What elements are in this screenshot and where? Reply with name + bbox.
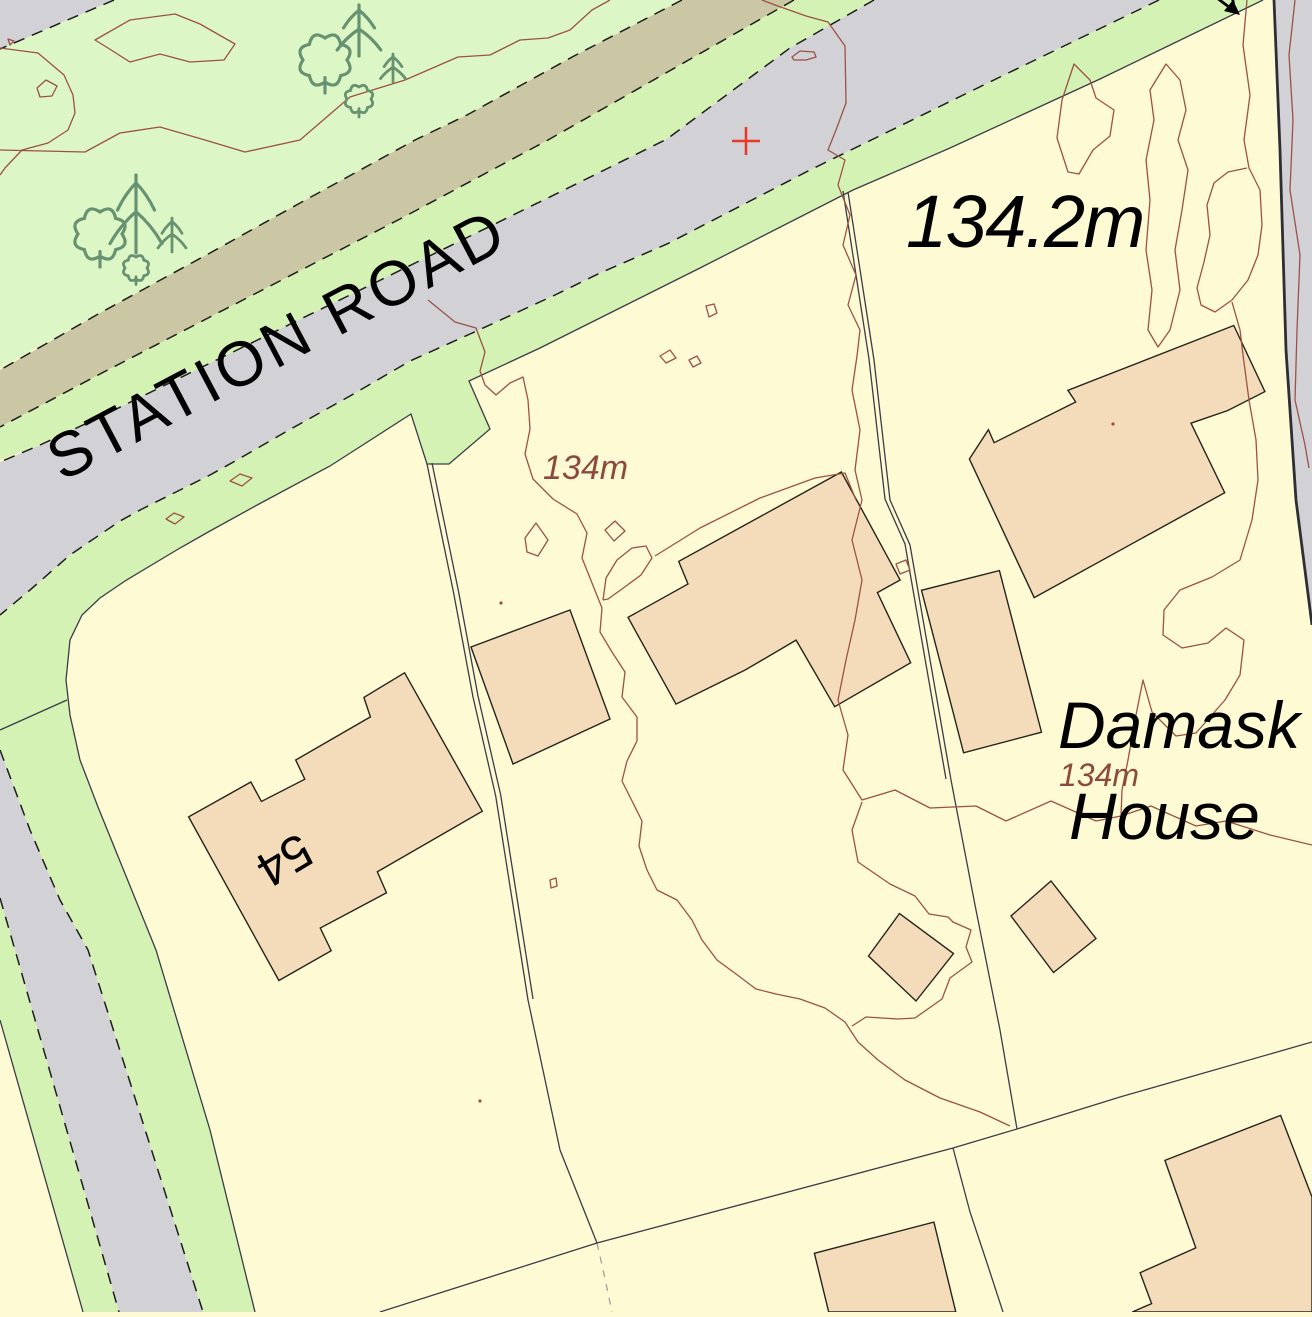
svg-text:House: House [1069, 779, 1260, 853]
svg-text:Damask: Damask [1058, 688, 1303, 762]
svg-text:134.2m: 134.2m [906, 180, 1144, 263]
svg-text:134m: 134m [543, 449, 628, 487]
